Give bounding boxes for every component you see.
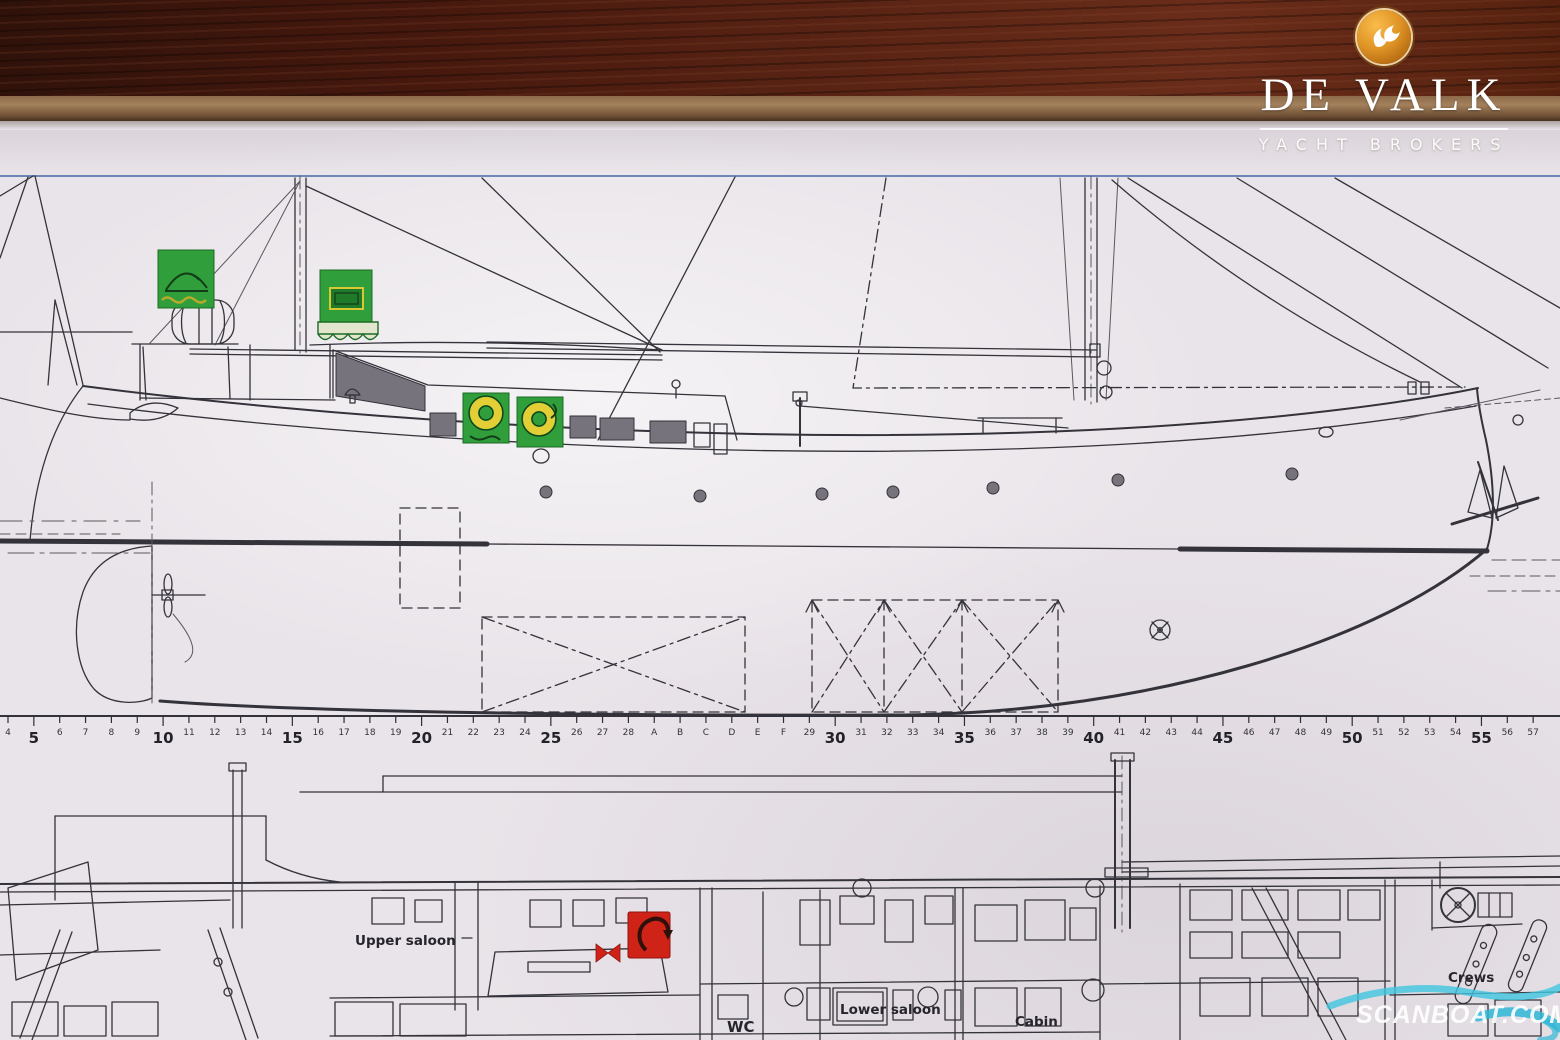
svg-text:53: 53	[1424, 728, 1435, 738]
svg-text:43: 43	[1166, 728, 1177, 738]
interior-elevation-view: Upper saloon WC Lower saloon Cabin Crews	[0, 753, 1560, 1040]
svg-text:34: 34	[933, 728, 945, 738]
hull-profile	[0, 382, 1560, 715]
svg-text:31: 31	[855, 728, 866, 738]
svg-text:9: 9	[134, 728, 140, 738]
svg-text:52: 52	[1398, 728, 1409, 738]
svg-text:A: A	[651, 728, 658, 738]
upper-saloon-label: Upper saloon	[355, 933, 456, 949]
liferaft-sticker	[158, 250, 214, 308]
rigging	[0, 176, 1560, 440]
svg-text:30: 30	[825, 729, 846, 747]
svg-text:20: 20	[411, 729, 432, 747]
svg-text:28: 28	[623, 728, 635, 738]
svg-text:41: 41	[1114, 728, 1125, 738]
svg-text:12: 12	[209, 728, 220, 738]
svg-text:10: 10	[153, 729, 174, 747]
svg-text:44: 44	[1191, 728, 1203, 738]
wheel-detail	[1150, 620, 1170, 640]
svg-text:24: 24	[519, 728, 531, 738]
svg-text:15: 15	[282, 729, 303, 747]
deck-crane	[793, 392, 1068, 446]
anchor-icon	[1400, 382, 1560, 524]
svg-text:57: 57	[1527, 728, 1538, 738]
svg-text:35: 35	[954, 729, 975, 747]
lower-saloon-label: Lower saloon	[840, 1002, 941, 1018]
svg-text:27: 27	[597, 728, 608, 738]
svg-text:25: 25	[540, 729, 561, 747]
svg-text:50: 50	[1342, 729, 1363, 747]
svg-text:56: 56	[1502, 728, 1514, 738]
windlass-detail	[1432, 862, 1522, 930]
svg-text:17: 17	[338, 728, 349, 738]
svg-text:16: 16	[312, 728, 324, 738]
svg-text:47: 47	[1269, 728, 1280, 738]
svg-text:39: 39	[1062, 728, 1074, 738]
crews-label: Crews	[1448, 970, 1494, 986]
svg-text:38: 38	[1036, 728, 1048, 738]
svg-text:48: 48	[1295, 728, 1307, 738]
svg-text:54: 54	[1450, 728, 1462, 738]
svg-text:49: 49	[1321, 728, 1333, 738]
photo-of-yacht-plan: DE VALK YACHT BROKERS	[0, 0, 1560, 1040]
svg-text:55: 55	[1471, 729, 1492, 747]
svg-text:14: 14	[261, 728, 273, 738]
lifebuoy-sticker	[463, 393, 509, 443]
svg-text:42: 42	[1140, 728, 1151, 738]
svg-text:B: B	[677, 728, 683, 738]
svg-text:26: 26	[571, 728, 583, 738]
fire-equipment-sticker	[628, 912, 673, 958]
watermark-text: SCANBOAT.COM	[1356, 1001, 1560, 1029]
svg-text:23: 23	[493, 728, 504, 738]
cabin-label: Cabin	[1015, 1014, 1058, 1030]
hatch-sticker	[320, 270, 372, 328]
svg-text:F: F	[781, 728, 786, 738]
interior-structure	[0, 753, 1560, 1040]
ruler-ticks: 4567891011121314151617181920212223242526…	[5, 716, 1539, 747]
svg-text:E: E	[755, 728, 761, 738]
svg-text:21: 21	[442, 728, 453, 738]
wc-label: WC	[727, 1018, 755, 1036]
svg-text:13: 13	[235, 728, 246, 738]
svg-text:22: 22	[468, 728, 479, 738]
svg-text:11: 11	[183, 728, 194, 738]
svg-text:32: 32	[881, 728, 892, 738]
yacht-general-arrangement-drawing: 4567891011121314151617181920212223242526…	[0, 0, 1560, 1040]
svg-text:51: 51	[1372, 728, 1383, 738]
svg-text:6: 6	[57, 728, 63, 738]
svg-text:8: 8	[109, 728, 115, 738]
side-profile-view	[0, 176, 1560, 715]
svg-text:C: C	[703, 728, 709, 738]
awning-scallop	[318, 322, 378, 340]
tank-outlines	[400, 508, 1064, 712]
svg-text:33: 33	[907, 728, 918, 738]
svg-text:19: 19	[390, 728, 402, 738]
svg-text:36: 36	[985, 728, 997, 738]
svg-text:37: 37	[1010, 728, 1021, 738]
lifebuoy-sticker	[517, 397, 563, 447]
svg-text:4: 4	[5, 728, 11, 738]
station-ruler: 4567891011121314151617181920212223242526…	[0, 716, 1560, 747]
valve-icon	[596, 944, 620, 962]
svg-text:46: 46	[1243, 728, 1255, 738]
svg-text:40: 40	[1083, 729, 1104, 747]
svg-text:45: 45	[1213, 729, 1234, 747]
svg-text:7: 7	[83, 728, 89, 738]
svg-text:D: D	[728, 728, 735, 738]
scanboat-watermark: SCANBOAT.COM	[1330, 987, 1560, 1040]
svg-text:5: 5	[29, 729, 39, 747]
svg-text:29: 29	[804, 728, 816, 738]
svg-text:18: 18	[364, 728, 376, 738]
